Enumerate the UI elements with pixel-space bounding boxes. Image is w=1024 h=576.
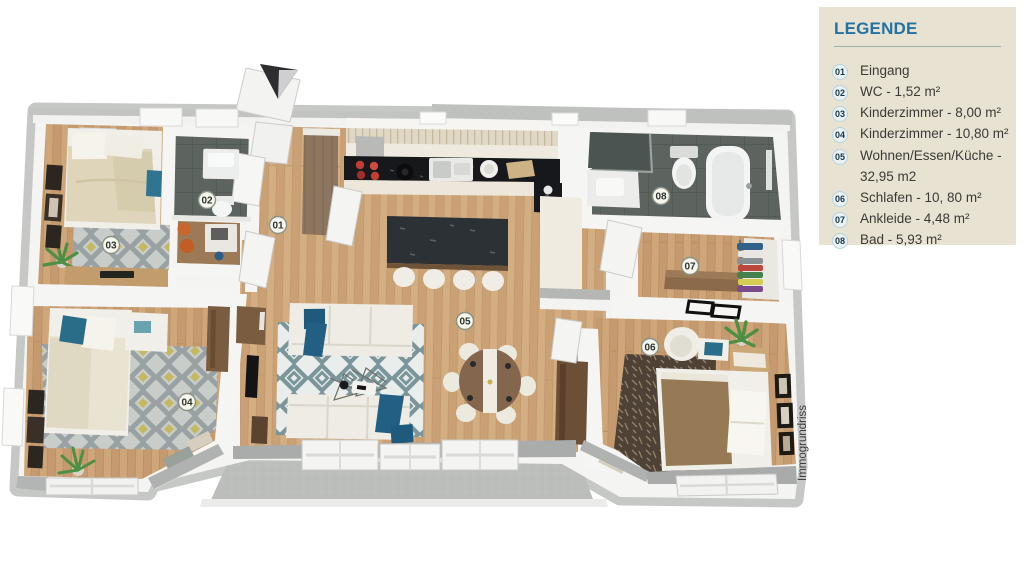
svg-text:06: 06: [644, 343, 656, 354]
svg-text:08: 08: [655, 192, 667, 203]
svg-text:03: 03: [105, 241, 117, 252]
svg-text:01: 01: [272, 221, 284, 232]
svg-text:02: 02: [201, 196, 213, 207]
svg-text:04: 04: [181, 398, 193, 409]
svg-text:Immogrundriss: Immogrundriss: [797, 405, 809, 481]
svg-text:07: 07: [684, 262, 696, 273]
svg-text:05: 05: [459, 317, 471, 328]
